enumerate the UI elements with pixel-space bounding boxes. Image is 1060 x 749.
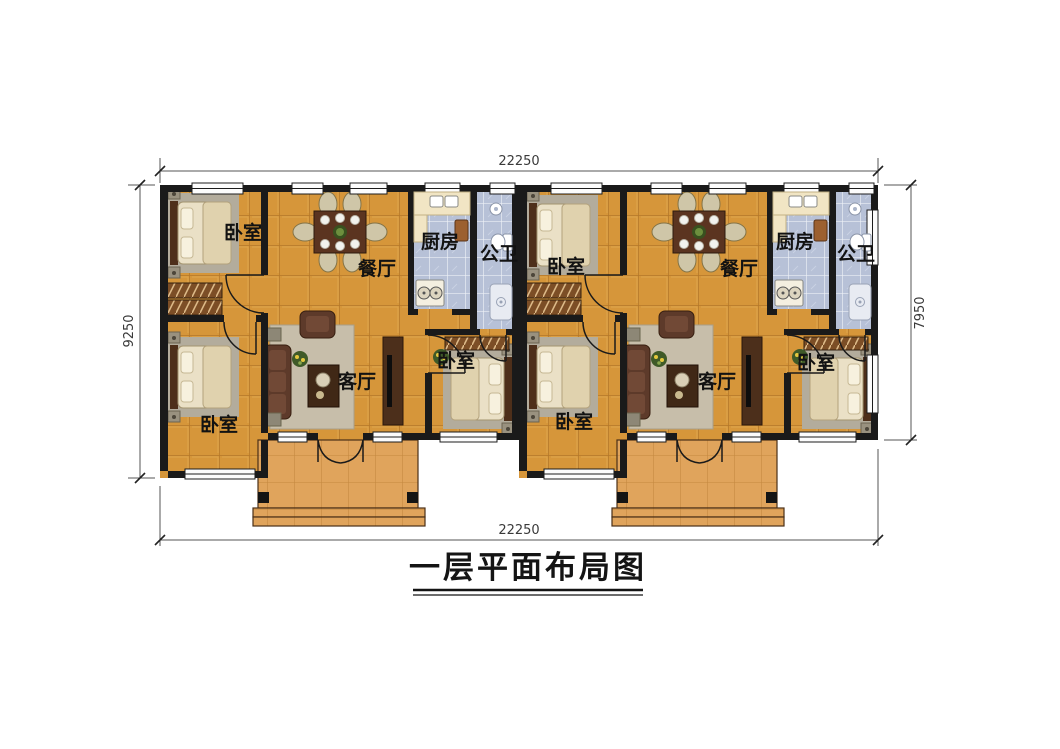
room-label-living: 客厅 [338,370,376,393]
dimension-right-value: 7950 [913,296,928,329]
wardrobe [522,300,581,315]
drawing-title: 一层平面布局图 [409,550,647,585]
room-label-kitchen: 厨房 [421,230,459,253]
floor-plan-canvas: 卧室 餐厅 厨房 公卫 卧室 客厅 卧室 [0,0,1060,749]
floor-plan-page: 卧室 餐厅 厨房 公卫 卧室 客厅 卧室 [0,0,1060,749]
dimension-bottom-value: 22250 [498,523,539,538]
porch-post [258,492,269,503]
wardrobe [163,300,222,315]
bed-sw [167,332,239,422]
porch-post [617,492,628,503]
tv-cabinet [383,337,403,425]
wardrobe [804,337,868,350]
dimension-left-value: 9250 [122,314,137,347]
sofa-set [623,311,713,429]
wardrobe [445,337,509,350]
plant [651,351,667,367]
wardrobe [522,283,581,298]
plant [292,351,308,367]
room-label-bathroom: 公卫 [480,243,518,265]
room-label-bedroom-nw: 卧室 [547,255,585,278]
room-label-bedroom-nw: 卧室 [224,221,262,244]
sofa-set [264,311,354,429]
room-label-kitchen: 厨房 [776,230,814,253]
room-label-bedroom-sw: 卧室 [555,410,593,433]
bed-sw [526,332,598,422]
room-label-bedroom-se: 卧室 [797,351,835,374]
dimension-top-value: 22250 [498,154,539,169]
wardrobe [163,283,222,298]
room-label-bedroom-sw: 卧室 [200,413,238,436]
room-label-dining: 餐厅 [720,257,758,280]
porch-post [407,492,418,503]
porch [253,440,425,526]
room-label-dining: 餐厅 [358,257,396,280]
room-label-living: 客厅 [698,370,736,393]
porch-post [766,492,777,503]
room-label-bedroom-se: 卧室 [437,349,475,372]
room-label-bathroom: 公卫 [837,243,875,265]
porch [612,440,784,526]
tv-cabinet [742,337,762,425]
